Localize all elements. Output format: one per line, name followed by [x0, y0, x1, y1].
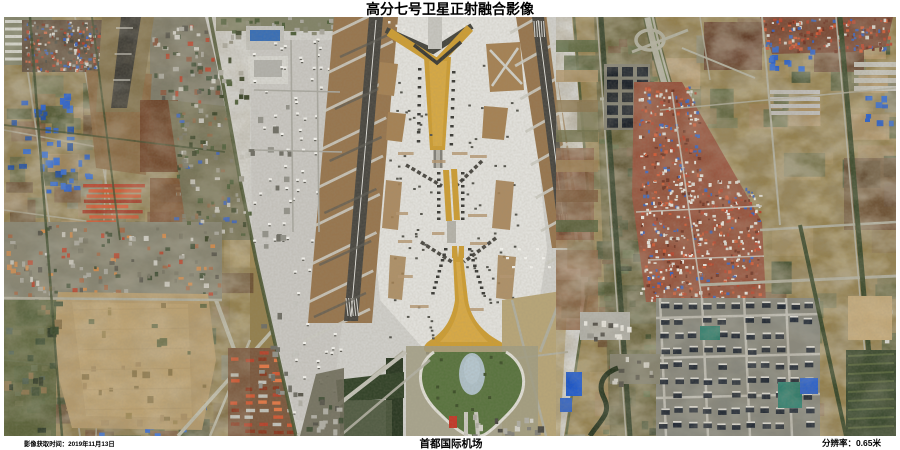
- svg-text:高分七号卫星正射融合影像: 高分七号卫星正射融合影像: [366, 1, 535, 17]
- svg-text:分辨率：0.65米: 分辨率：0.65米: [822, 438, 882, 448]
- svg-text:影像获取时间：2019年11月13日: 影像获取时间：2019年11月13日: [24, 439, 115, 448]
- svg-text:首都国际机场: 首都国际机场: [420, 437, 483, 450]
